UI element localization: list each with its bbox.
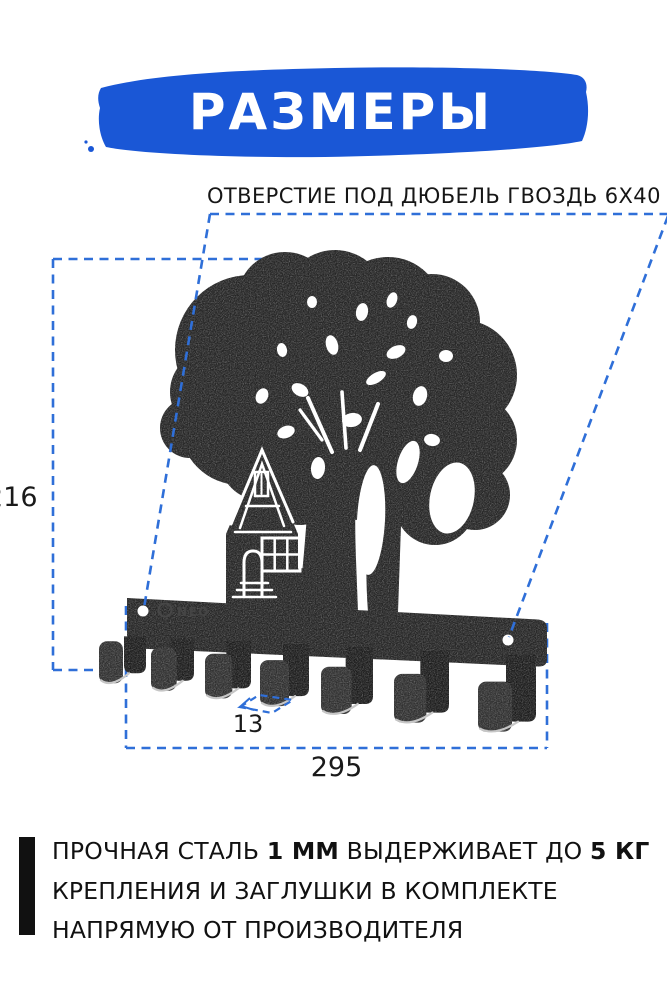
- info-line-2: КРЕПЛЕНИЯ И ЗАГЛУШКИ В КОМПЛЕКТЕ: [52, 872, 650, 912]
- mounting-hole-left: [138, 606, 149, 617]
- info-line-1: ПРОЧНАЯ СТАЛЬ 1 ММ ВЫДЕРЖИВАЕТ ДО 5 КГ: [52, 832, 650, 872]
- dimension-hook-width-label: 13: [228, 710, 268, 738]
- info-line1-seg1: ПРОЧНАЯ СТАЛЬ: [52, 837, 267, 865]
- info-line1-seg2: 1 ММ: [267, 837, 339, 865]
- leader-line-right-hole: [509, 216, 667, 637]
- info-accent-bar: [19, 837, 35, 935]
- info-line1-seg3: ВЫДЕРЖИВАЕТ ДО: [339, 837, 590, 865]
- info-line1-seg4: 5 КГ: [590, 837, 650, 865]
- banner-title: РАЗМЕРЫ: [97, 66, 585, 158]
- dimension-width-label: 295: [126, 752, 547, 783]
- brand-logo-text: NEO: [177, 605, 210, 619]
- info-text-block: ПРОЧНАЯ СТАЛЬ 1 ММ ВЫДЕРЖИВАЕТ ДО 5 КГ К…: [52, 832, 650, 951]
- product-size-infographic: NEO РАЗМЕРЫ ОТВЕРСТИЕ ПОД ДЮБЕЛЬ ГВОЗДЬ …: [0, 0, 667, 1000]
- hole-callout-label: ОТВЕРСТИЕ ПОД ДЮБЕЛЬ ГВОЗДЬ 6X40: [207, 184, 661, 208]
- info-line-3: НАПРЯМУЮ ОТ ПРОИЗВОДИТЕЛЯ: [52, 911, 650, 951]
- steel-speckle-texture: [99, 250, 547, 732]
- dimension-height-label: 216: [0, 482, 38, 513]
- banner-splatter-dot: [88, 146, 94, 152]
- banner-splatter-dot: [84, 140, 87, 143]
